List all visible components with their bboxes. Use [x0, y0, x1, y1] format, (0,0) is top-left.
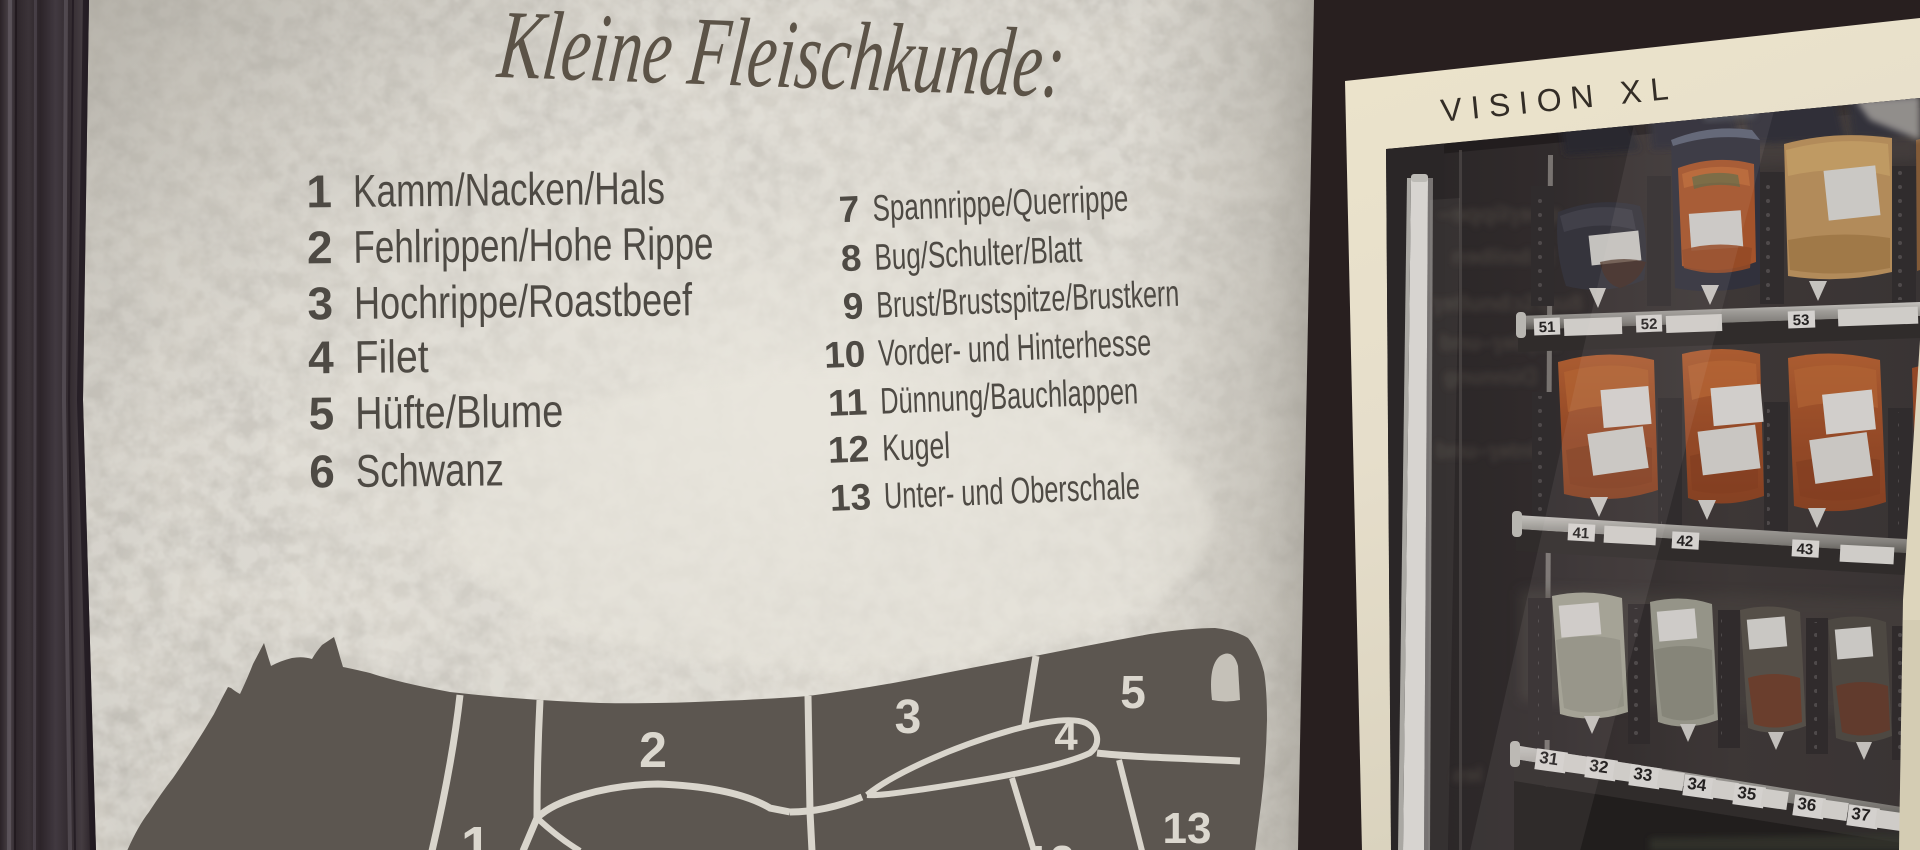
svg-text:9: 9 [842, 285, 864, 327]
svg-text:Hochrippe/Roastbeef: Hochrippe/Roastbeef [354, 273, 693, 329]
svg-text:2: 2 [307, 221, 333, 273]
svg-text:4: 4 [1054, 712, 1078, 759]
svg-text:Hüfte/Blume: Hüfte/Blume [355, 385, 564, 439]
svg-text:3: 3 [895, 691, 922, 744]
svg-text:13: 13 [829, 476, 872, 519]
svg-text:Kleine Fleischkunde:: Kleine Fleischkunde: [492, 0, 1070, 119]
svg-text:12: 12 [1026, 837, 1075, 850]
svg-text:Fehlrippen/Hohe Rippe: Fehlrippen/Hohe Rippe [353, 217, 714, 273]
svg-text:6: 6 [309, 445, 335, 497]
svg-text:Schwanz: Schwanz [356, 443, 505, 497]
svg-text:10: 10 [823, 333, 866, 376]
svg-text:Kamm/Nacken/Hals: Kamm/Nacken/Hals [353, 162, 666, 217]
svg-text:8: 8 [840, 237, 862, 279]
svg-text:5: 5 [308, 387, 334, 439]
svg-text:12: 12 [827, 428, 870, 471]
svg-text:4: 4 [308, 331, 335, 383]
svg-text:Filet: Filet [354, 330, 429, 383]
svg-text:1: 1 [306, 165, 332, 217]
svg-text:3: 3 [307, 277, 333, 329]
svg-text:11: 11 [827, 381, 868, 424]
svg-text:5: 5 [1120, 666, 1146, 718]
svg-text:13: 13 [1163, 804, 1212, 850]
svg-text:7: 7 [838, 188, 860, 230]
svg-text:Bug/Schulter/Blatt: Bug/Schulter/Blatt [874, 228, 1084, 277]
svg-text:2: 2 [639, 722, 667, 778]
svg-text:1: 1 [461, 816, 491, 850]
svg-text:Kugel: Kugel [881, 425, 951, 469]
